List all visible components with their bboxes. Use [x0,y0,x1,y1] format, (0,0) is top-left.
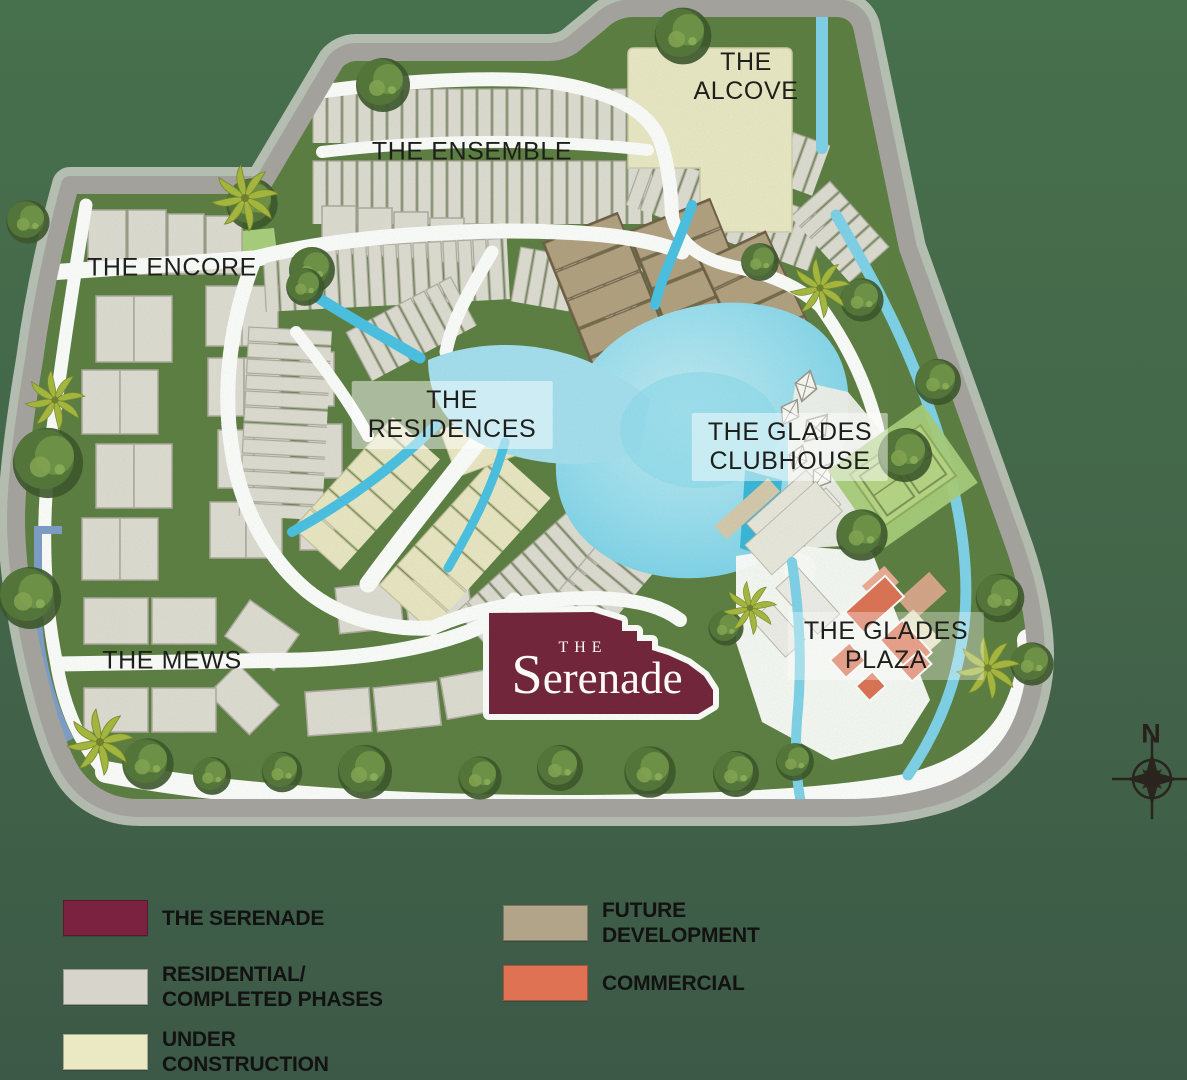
site-plan-page: THE ALCOVE THE ENSEMBLE THE ENCORE THE R… [0,0,1187,1080]
legend-label-under-construction: UNDER CONSTRUCTION [162,1027,329,1077]
legend-swatch-commercial [503,965,588,1001]
legend-swatch-future-development [503,905,588,941]
legend-label-commercial: COMMERCIAL [602,971,745,996]
legend-item-future-development: FUTURE DEVELOPMENT [503,898,760,948]
area-label-alcove[interactable]: THE ALCOVE [693,48,798,106]
serenade-logo-name: Serenade [511,651,682,702]
area-label-residences[interactable]: THE RESIDENCES [352,381,553,449]
serenade-logo: THE Serenade [492,628,702,712]
area-label-glades-clubhouse[interactable]: THE GLADES CLUBHOUSE [692,413,888,481]
legend-swatch-under-construction [63,1034,148,1070]
area-label-ensemble[interactable]: THE ENSEMBLE [372,138,572,167]
compass-north-label: N [1141,719,1161,750]
legend-label-future-development: FUTURE DEVELOPMENT [602,898,760,948]
serenade-logo-prefix: THE [558,639,607,657]
area-label-glades-plaza[interactable]: THE GLADES PLAZA [788,612,984,680]
legend-item-serenade: THE SERENADE [63,900,324,936]
legend-item-under-construction: UNDER CONSTRUCTION [63,1027,329,1077]
area-label-mews[interactable]: THE MEWS [102,647,242,676]
area-label-encore[interactable]: THE ENCORE [87,254,257,283]
legend-item-residential: RESIDENTIAL/ COMPLETED PHASES [63,962,383,1012]
legend-label-residential: RESIDENTIAL/ COMPLETED PHASES [162,962,383,1012]
legend-swatch-residential [63,969,148,1005]
legend-label-serenade: THE SERENADE [162,906,324,931]
legend-swatch-serenade [63,900,148,936]
legend-item-commercial: COMMERCIAL [503,965,745,1001]
